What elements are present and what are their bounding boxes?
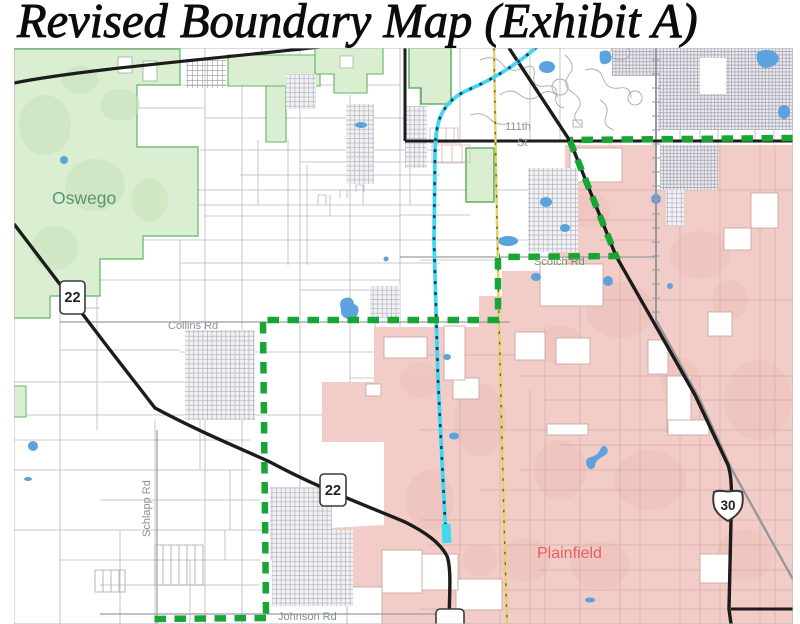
svg-text:Collins Rd: Collins Rd	[168, 320, 218, 332]
svg-text:St: St	[517, 137, 527, 149]
svg-text:Johnson Rd: Johnson Rd	[278, 611, 337, 623]
svg-text:30: 30	[720, 498, 735, 513]
svg-text:Plainfield: Plainfield	[537, 545, 602, 562]
svg-text:Schlapp Rd: Schlapp Rd	[141, 480, 153, 537]
svg-text:Oswego: Oswego	[52, 188, 116, 208]
svg-text:Scotch Rd: Scotch Rd	[534, 256, 585, 268]
svg-text:22: 22	[325, 483, 341, 499]
svg-text:22: 22	[64, 290, 80, 306]
svg-text:Revised Boundary Map (Exhibit: Revised Boundary Map (Exhibit A)	[16, 0, 698, 48]
svg-text:111th: 111th	[505, 121, 531, 133]
